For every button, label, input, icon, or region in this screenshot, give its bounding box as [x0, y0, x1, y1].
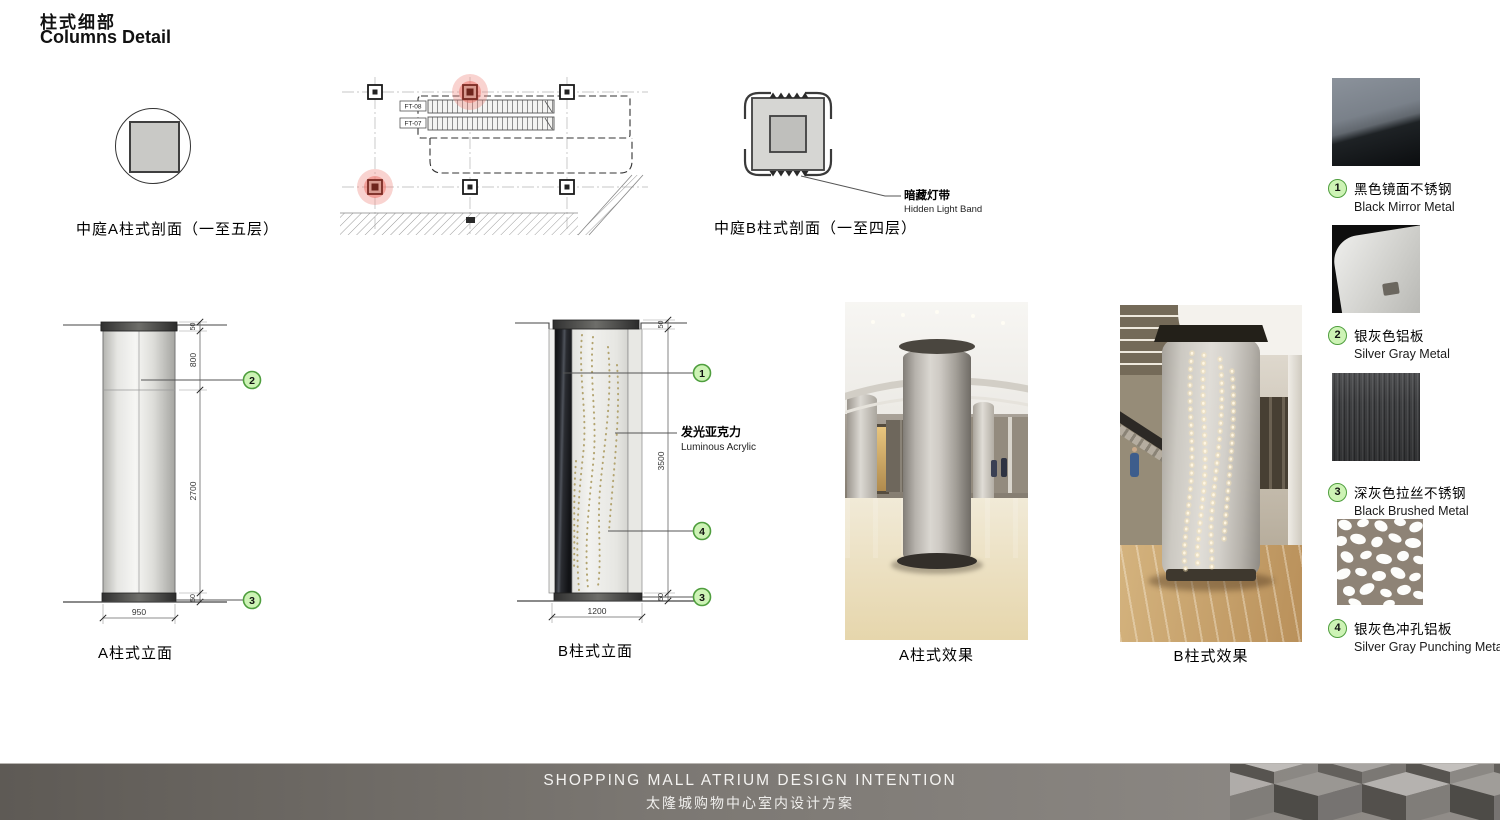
- escalator-label-ft07: FT-07: [405, 121, 422, 128]
- column-b-base: [554, 593, 642, 601]
- material-swatch-punched-metal: [1337, 519, 1423, 605]
- material-4-en: Silver Gray Punching Metal: [1354, 640, 1500, 654]
- svg-text:3: 3: [699, 592, 705, 604]
- svg-text:4: 4: [699, 526, 705, 538]
- svg-text:2: 2: [249, 375, 255, 387]
- section-b-drawing: 暗藏灯带 Hidden Light Band: [735, 83, 1020, 223]
- material-3-cn: 深灰色拉丝不锈钢: [1354, 482, 1469, 502]
- material-4-number: 4: [1328, 619, 1347, 638]
- material-2-en: Silver Gray Metal: [1354, 347, 1450, 361]
- plan-highlighted-column-b: [452, 74, 488, 110]
- light-band-leader: [801, 176, 901, 196]
- column-b-mirror-band: [555, 329, 572, 593]
- section-a-detail-circle: [115, 108, 191, 184]
- dim-b-width: 1200: [588, 606, 607, 616]
- section-a-label: 中庭A柱式剖面（一至五层）: [76, 218, 279, 239]
- material-3-en: Black Brushed Metal: [1354, 504, 1469, 518]
- material-3-number: 3: [1328, 483, 1347, 502]
- key-plan-drawing: FT-08 FT-07: [340, 73, 655, 241]
- dim-a-800: 800: [188, 353, 198, 367]
- photo-a-person-1: [991, 460, 997, 477]
- escalator-label-ft08: FT-08: [405, 104, 422, 111]
- material-label-3: 3 深灰色拉丝不锈钢 Black Brushed Metal: [1328, 482, 1500, 518]
- footer-cube-pattern: [1230, 764, 1500, 820]
- svg-text:3: 3: [249, 595, 255, 607]
- photo-a-label: A柱式效果: [845, 644, 1028, 665]
- column-b-edge-strip: [549, 329, 555, 593]
- elevation-b-drawing: 50 3500 50 1200 1 发光亚克力 Luminous Acrylic…: [505, 303, 765, 655]
- material-1-cn: 黑色镜面不锈钢: [1354, 178, 1455, 198]
- plan-atrium-void-outline: [430, 138, 632, 173]
- photo-b-person: [1130, 453, 1139, 477]
- dim-b-3500: 3500: [656, 451, 666, 470]
- slide-canvas: 柱式细部 Columns Detail 中庭A柱式剖面（一至五层）: [0, 0, 1500, 820]
- photo-b-render: [1120, 305, 1302, 642]
- plan-highlighted-column-a: [357, 169, 393, 205]
- section-b-core-square: [770, 116, 806, 152]
- svg-text:1: 1: [699, 368, 705, 380]
- material-swatch-black-mirror: [1332, 78, 1420, 166]
- svg-text:Luminous Acrylic: Luminous Acrylic: [681, 442, 756, 453]
- footer-bar: SHOPPING MALL ATRIUM DESIGN INTENTION 太隆…: [0, 763, 1500, 820]
- photo-b-person-head: [1132, 447, 1137, 452]
- column-b-acrylic-panel: [572, 329, 628, 593]
- column-a-base: [102, 593, 176, 602]
- photo-a-column-base: [897, 553, 977, 569]
- photo-b-light-dots: [1162, 339, 1260, 577]
- dim-a-base: 50: [190, 594, 197, 602]
- photo-a-column-cap: [899, 339, 975, 354]
- photo-a-person-2: [1001, 458, 1007, 477]
- svg-text:发光亚克力: 发光亚克力: [680, 424, 741, 439]
- material-1-en: Black Mirror Metal: [1354, 200, 1455, 214]
- material-1-number: 1: [1328, 179, 1347, 198]
- material-4-cn: 银灰色冲孔铝板: [1354, 618, 1500, 638]
- light-band-label-cn: 暗藏灯带: [904, 188, 950, 202]
- photo-a-column: [903, 348, 971, 564]
- photo-b-label: B柱式效果: [1120, 645, 1302, 666]
- dim-a-cap: 50: [190, 323, 197, 331]
- elevation-a-label: A柱式立面: [98, 642, 173, 663]
- elevation-b-label: B柱式立面: [558, 640, 633, 661]
- brush-sheen: [1332, 373, 1420, 461]
- plate-logo: [1382, 282, 1400, 296]
- dim-a-width: 950: [132, 607, 146, 617]
- material-swatch-brushed-metal: [1332, 373, 1420, 461]
- photo-a-render: [845, 302, 1028, 640]
- callout-a-3: 3: [176, 592, 261, 609]
- elevation-a-drawing: 50 800 2700 50 950 2 3: [55, 310, 305, 660]
- photo-b-right-pilaster: [1288, 355, 1302, 547]
- light-band-label-en: Hidden Light Band: [904, 204, 982, 215]
- punched-holes-pattern: [1337, 519, 1423, 605]
- dim-a-2700: 2700: [188, 481, 198, 500]
- column-a-cap: [101, 322, 177, 331]
- material-label-2: 2 银灰色铝板 Silver Gray Metal: [1328, 325, 1500, 361]
- material-swatch-silver-gray: [1332, 225, 1420, 313]
- photo-b-right-storefront: [1259, 397, 1289, 489]
- silver-plate: [1332, 225, 1420, 313]
- column-b-return-face: [628, 329, 642, 593]
- material-label-1: 1 黑色镜面不锈钢 Black Mirror Metal: [1328, 178, 1500, 214]
- section-a-column-square: [129, 121, 180, 173]
- material-label-4: 4 银灰色冲孔铝板 Silver Gray Punching Metal: [1328, 618, 1500, 654]
- page-title-en: Columns Detail: [40, 27, 171, 48]
- material-2-cn: 银灰色铝板: [1354, 325, 1450, 345]
- section-b-label: 中庭B柱式剖面（一至四层）: [714, 217, 917, 238]
- column-b-cap: [553, 320, 639, 329]
- dim-b-cap: 50: [658, 321, 665, 329]
- callout-b-3: 3: [642, 589, 711, 606]
- material-2-number: 2: [1328, 326, 1347, 345]
